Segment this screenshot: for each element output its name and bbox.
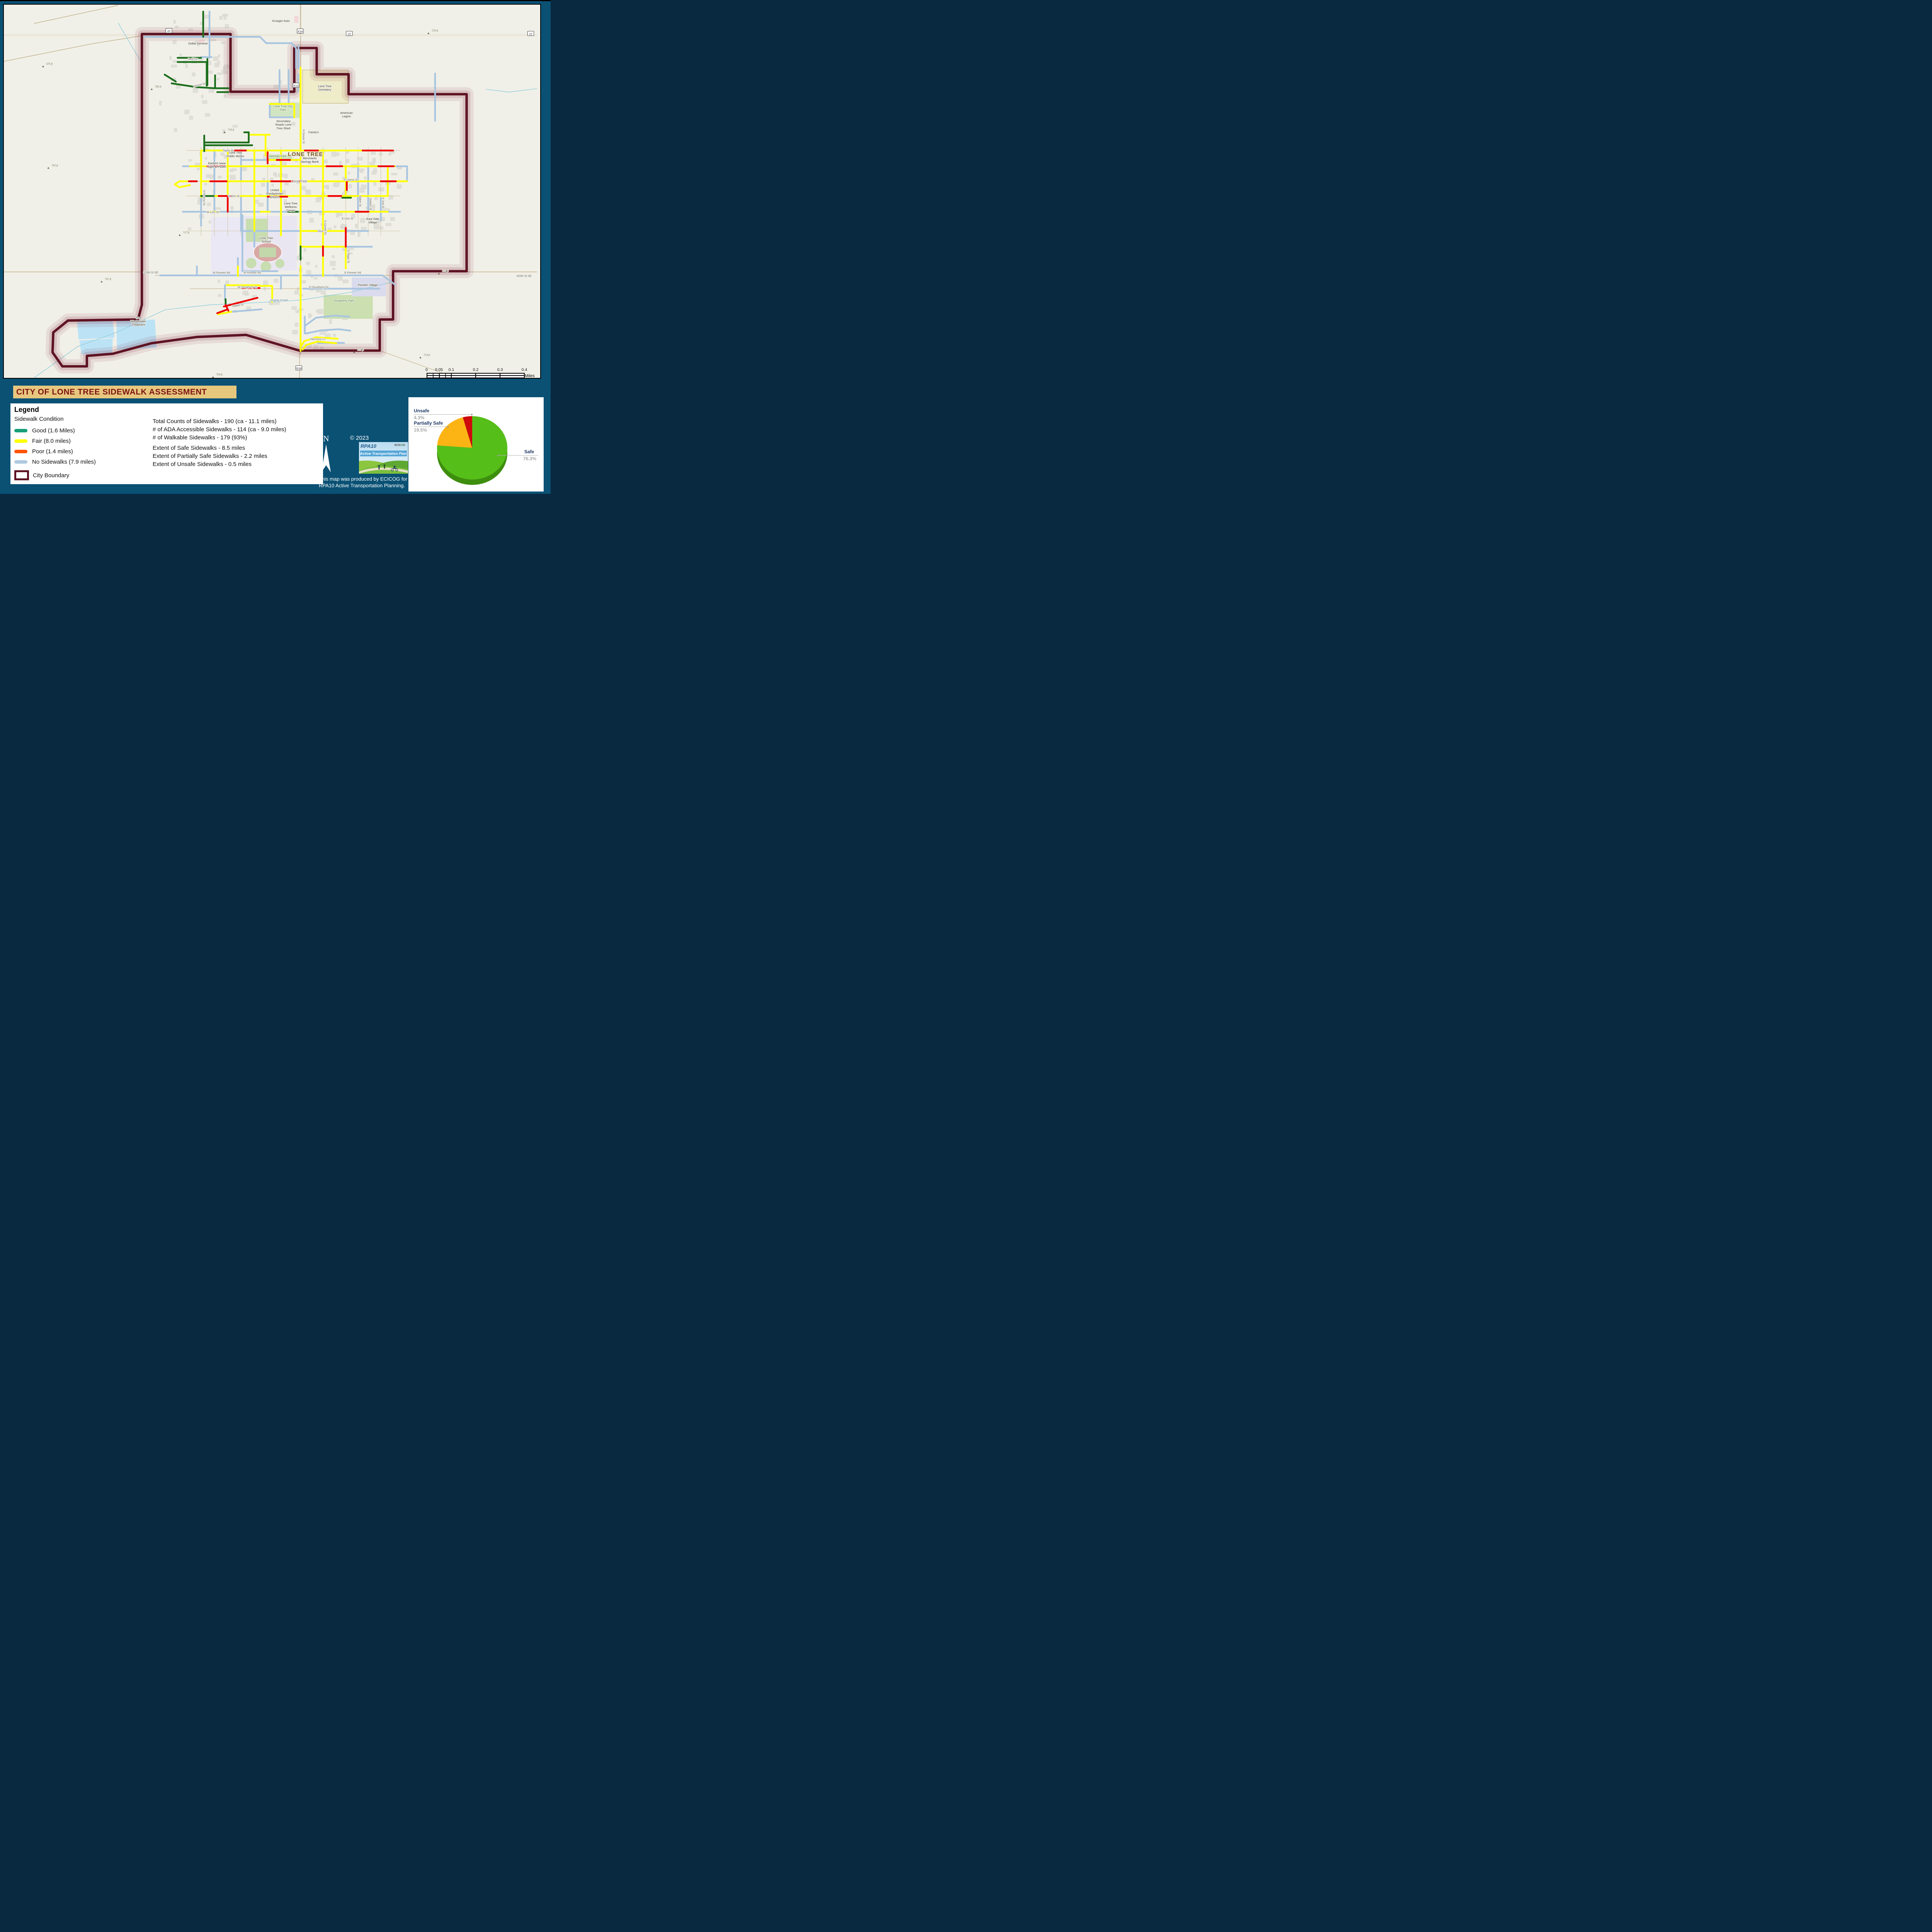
scale-tick: 0.1 bbox=[449, 367, 454, 372]
landmark-building bbox=[294, 16, 299, 23]
scale-bar-graphic bbox=[427, 373, 525, 379]
elevation-label: 729 ft bbox=[432, 29, 439, 32]
attribution-line: RPA10 Active Transportation Planning. bbox=[319, 482, 409, 489]
pie-pct-safe: 76.3% bbox=[523, 456, 536, 461]
pie-label-safe: Safe bbox=[524, 449, 534, 454]
map-label: S Center St bbox=[324, 220, 327, 235]
legend-item-no-sidewalks: No Sidewalks (7.9 miles) bbox=[14, 458, 96, 466]
map-label: Dollar General bbox=[188, 42, 207, 45]
scale-tick: 0.4 bbox=[522, 367, 527, 372]
no-sidewalk-swatch bbox=[14, 460, 27, 464]
legend-item-label: City Boundary bbox=[33, 472, 69, 479]
poor-swatch bbox=[14, 450, 27, 453]
elevation-label: 703 ft bbox=[51, 164, 58, 167]
pioneer-village-area bbox=[352, 277, 386, 296]
svg-text:22: 22 bbox=[348, 32, 351, 36]
map-label: Railroad Park bbox=[269, 155, 287, 158]
scale-tick: 0.3 bbox=[497, 367, 503, 372]
map-label: N Devoe St bbox=[302, 129, 305, 144]
pie-pct-partially-safe: 19.5% bbox=[414, 427, 427, 433]
stat-total-counts: Total Counts of Sidewalks - 190 (ca - 11… bbox=[153, 417, 319, 425]
map-label: E Jayne St bbox=[344, 178, 358, 181]
map-label: Casey's bbox=[308, 130, 319, 134]
map-label: E 2nd St bbox=[381, 197, 385, 208]
map-label: E Pioneer Rd bbox=[344, 271, 361, 274]
map-label: Lone Tree bbox=[291, 179, 307, 183]
map-label: Taylor Dr bbox=[223, 149, 235, 152]
sidewalk-none bbox=[306, 329, 350, 333]
stat-ada-accessible: # of ADA Accessible Sidewalks - 114 (ca … bbox=[153, 425, 319, 434]
elevation-label: 732 ft bbox=[442, 270, 449, 273]
good-swatch bbox=[14, 429, 27, 432]
map-label: Pioneer Village bbox=[358, 283, 378, 287]
map-label: Dougherty Park bbox=[334, 299, 355, 303]
map-label: LONE TREE bbox=[288, 151, 323, 158]
sidewalk-statistics: Total Counts of Sidewalks - 190 (ca - 11… bbox=[153, 417, 319, 468]
svg-text:X14: X14 bbox=[298, 30, 303, 33]
scale-tick: 0.2 bbox=[473, 367, 479, 372]
north-label: N bbox=[319, 434, 333, 444]
map-canvas[interactable]: Krueger AutoDollar GeneralLone TreeCemet… bbox=[4, 5, 540, 378]
map-label: Eastern IowaLight & Power bbox=[207, 162, 226, 168]
copyright-text: © 2023 bbox=[340, 435, 379, 441]
map-label: Seibert St bbox=[369, 198, 372, 210]
elevation-label: 717 ft bbox=[183, 231, 190, 234]
map-label: AmericanLegion bbox=[340, 111, 353, 118]
map-label: Lone TreeCemetery bbox=[318, 85, 332, 92]
map-title: CITY OF LONE TREE SIDEWALK ASSESSMENT bbox=[13, 386, 236, 398]
map-label: Harmony Ln bbox=[310, 337, 325, 341]
pie-leader-unsafe bbox=[414, 414, 473, 415]
legend-item-poor: Poor (1.4 miles) bbox=[14, 447, 73, 455]
pie-label-partially-safe: Partially Safe bbox=[414, 420, 443, 426]
legend-item-label: Good (1.6 Miles) bbox=[32, 427, 75, 434]
elevation-label: 700 ft bbox=[216, 373, 223, 376]
legend-item-label: No Sidewalks (7.9 miles) bbox=[32, 459, 96, 465]
scale-unit: Miles bbox=[525, 374, 535, 378]
map-label: E Linn St bbox=[342, 217, 353, 220]
map-label: W Linn St bbox=[207, 211, 219, 214]
svg-text:RPA10: RPA10 bbox=[361, 443, 377, 449]
svg-text:22: 22 bbox=[167, 29, 170, 33]
map-label: W Pioneer Rd bbox=[213, 271, 230, 274]
legend-subheading: Sidewalk Condition bbox=[14, 416, 64, 422]
legend-item-label: Poor (1.4 miles) bbox=[32, 448, 73, 455]
pie-pct-unsafe: 4.3% bbox=[414, 415, 424, 420]
legend-panel: Legend Sidewalk Condition Good (1.6 Mile… bbox=[10, 403, 323, 484]
map-label: Krueger Auto bbox=[272, 19, 290, 22]
elevation-label: 719 ft bbox=[423, 354, 430, 357]
svg-text:22: 22 bbox=[529, 32, 532, 36]
map-label: SecondaryRoads LoneTree Shed bbox=[276, 119, 291, 130]
map-label: W Dougherty Dr bbox=[238, 285, 258, 289]
map-label: Jacki Dr bbox=[188, 57, 198, 61]
sidewalk-none bbox=[145, 37, 296, 68]
map-label: 620th St SE bbox=[517, 274, 532, 277]
elevation-label: 701 ft bbox=[105, 278, 112, 281]
stat-partially-safe-extent: Extent of Partially Safe Sidewalks - 2.2… bbox=[153, 452, 319, 460]
legend-item-city-boundary: City Boundary bbox=[14, 471, 69, 479]
rpa10-logo: RPA10 ECICOG Active Transportation Plan bbox=[359, 442, 408, 474]
svg-text:X14: X14 bbox=[294, 84, 299, 87]
map-label: 520th St SE bbox=[143, 270, 158, 274]
sidewalk-none bbox=[231, 310, 262, 312]
pie-leader-partially-safe bbox=[414, 427, 449, 427]
stat-unsafe-extent: Extent of Unsafe Sidewalks - 0.5 miles bbox=[153, 460, 319, 468]
attribution-line: This map was produced by ECICOG for bbox=[319, 476, 409, 482]
safety-pie-panel: Unsafe 4.3% Partially Safe 19.5% Safe 76… bbox=[408, 397, 544, 492]
svg-text:G18: G18 bbox=[296, 367, 302, 370]
map-title-text: CITY OF LONE TREE SIDEWALK ASSESSMENT bbox=[13, 388, 207, 397]
pie-label-unsafe: Unsafe bbox=[414, 408, 429, 413]
map-panel: Krueger AutoDollar GeneralLone TreeCemet… bbox=[3, 4, 541, 379]
north-arrow: N bbox=[319, 434, 333, 476]
fair-swatch bbox=[14, 439, 27, 443]
city-boundary-swatch bbox=[14, 470, 29, 480]
map-label: Baker St bbox=[359, 196, 362, 207]
legend-heading: Legend bbox=[14, 406, 39, 414]
attribution-text: This map was produced by ECICOG for RPA1… bbox=[319, 476, 409, 489]
track-infield bbox=[259, 247, 276, 257]
stat-safe-extent: Extent of Safe Sidewalks - 8.5 miles bbox=[153, 444, 319, 452]
legend-item-fair: Fair (8.0 miles) bbox=[14, 437, 71, 445]
elevation-label: 710 ft bbox=[228, 128, 235, 131]
north-arrow-icon bbox=[319, 444, 333, 474]
sidewalk-fair bbox=[175, 181, 190, 187]
map-label: Lone TreeWellnessCenter bbox=[284, 202, 298, 212]
svg-text:ECICOG: ECICOG bbox=[395, 444, 405, 447]
map-label: E Dougherty Dr bbox=[309, 285, 328, 289]
svg-text:Active Transportation Plan: Active Transportation Plan bbox=[360, 452, 407, 456]
map-label: S Perkins St bbox=[202, 190, 206, 206]
legend-item-good: Good (1.6 Miles) bbox=[14, 427, 75, 434]
scale-tick: 0 bbox=[425, 367, 428, 372]
map-label: S Riggs St bbox=[347, 250, 350, 263]
elevation-label: 676 ft bbox=[46, 63, 53, 66]
map-label: W Elm St bbox=[228, 194, 240, 198]
scale-bar: 0 0.05 0.1 0.2 0.3 0.4 Miles bbox=[425, 367, 541, 381]
map-label: W Pioneer Rd bbox=[243, 271, 261, 274]
city-boundary bbox=[53, 34, 467, 366]
rpa10-logo-graphic: RPA10 ECICOG Active Transportation Plan bbox=[359, 442, 408, 474]
page: Krueger AutoDollar GeneralLone TreeCemet… bbox=[0, 0, 551, 494]
elevation-label: 700 ft bbox=[155, 85, 162, 88]
ballfield-area bbox=[276, 259, 285, 268]
ballfield-area bbox=[246, 258, 256, 268]
scale-tick: 0.05 bbox=[435, 367, 443, 372]
stat-walkable: # of Walkable Sidewalks - 179 (93%) bbox=[153, 434, 319, 442]
legend-item-label: Fair (8.0 miles) bbox=[32, 438, 71, 444]
map-label: Prairie Creek bbox=[270, 299, 288, 302]
elevation-label: 731 ft bbox=[357, 348, 364, 351]
pie-leader-safe bbox=[497, 455, 538, 456]
